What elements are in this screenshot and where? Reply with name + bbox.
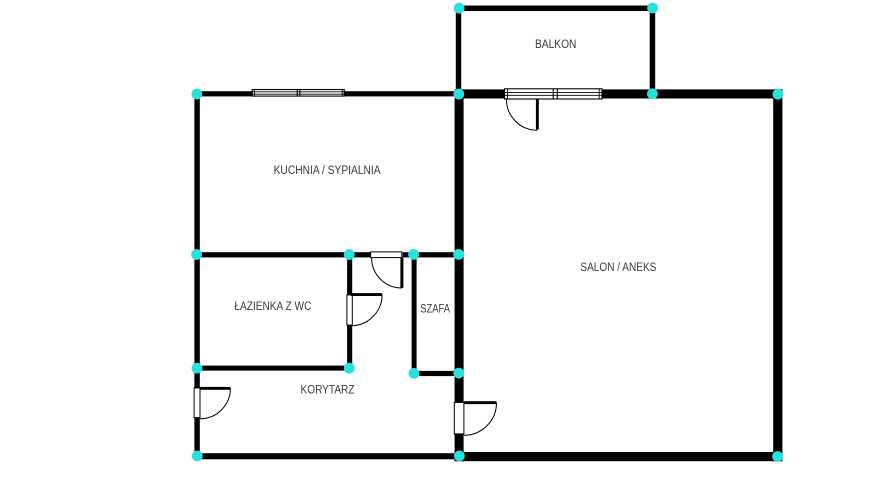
svg-text:ŁAZIENKA Z WC: ŁAZIENKA Z WC (234, 301, 311, 313)
svg-text:BALKON: BALKON (535, 39, 577, 51)
svg-text:SALON / ANEKS: SALON / ANEKS (580, 262, 656, 274)
svg-text:KUCHNIA / SYPIALNIA: KUCHNIA / SYPIALNIA (274, 165, 381, 177)
svg-text:KORYTARZ: KORYTARZ (301, 385, 355, 397)
svg-text:SZAFA: SZAFA (420, 304, 450, 316)
